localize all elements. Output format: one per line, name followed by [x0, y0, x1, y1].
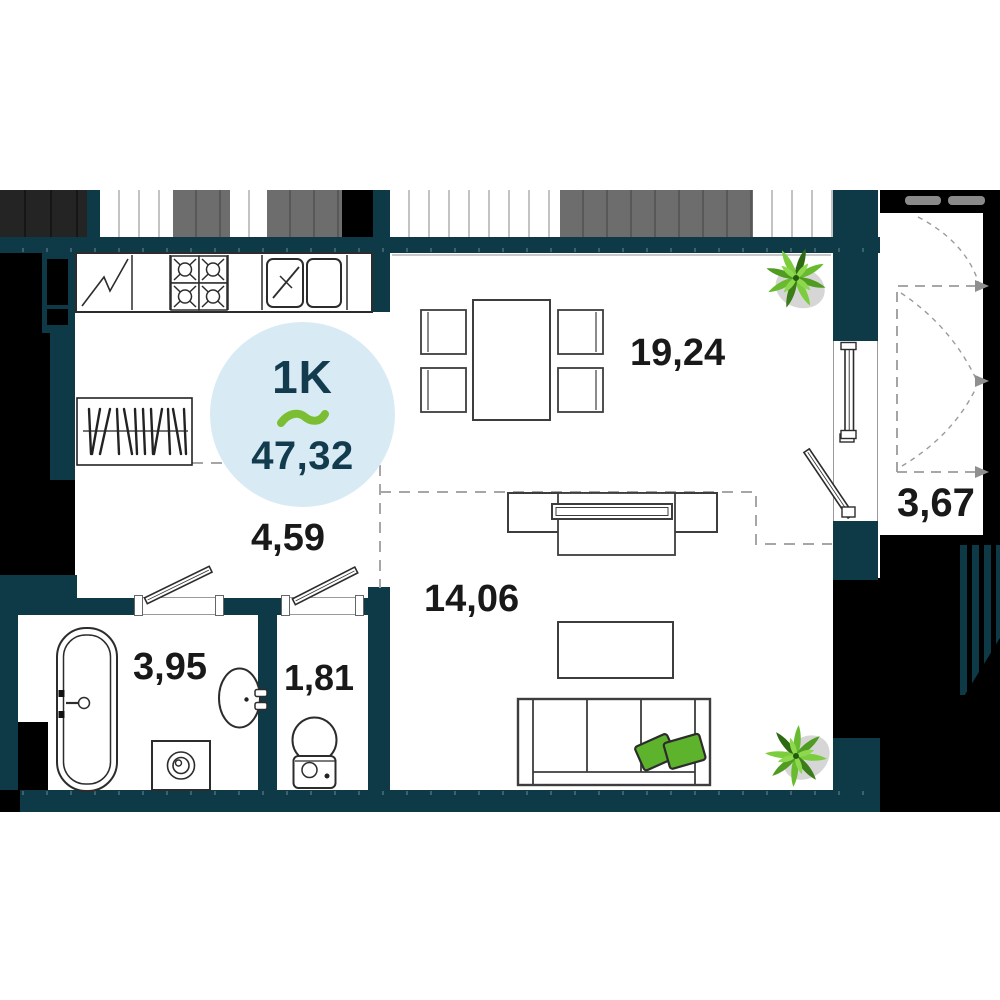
room-area-label: 4,59	[251, 519, 325, 557]
shaft-inset	[47, 259, 68, 305]
toilet-door-opening	[287, 597, 358, 615]
door-jamb	[215, 595, 224, 616]
wall-left-b	[50, 330, 75, 480]
vent-grille	[905, 196, 941, 205]
vent-grille	[948, 196, 985, 205]
wardrobe-icon	[77, 398, 192, 465]
neighbor-segment	[267, 190, 342, 237]
stove-icon	[171, 256, 227, 310]
wall-toilet-right	[368, 587, 390, 792]
exterior-mass-right	[833, 578, 880, 738]
bathroom-door-opening	[140, 597, 218, 615]
room-area-label: 14,06	[424, 580, 519, 618]
wall-right-mid	[833, 520, 878, 580]
wall-left-d	[0, 605, 18, 792]
total-area-label: 47,32	[251, 436, 354, 476]
exterior-inset	[18, 722, 48, 792]
chair	[421, 310, 466, 354]
shaft-inset	[47, 309, 68, 325]
tv-stand	[508, 493, 717, 555]
sofa	[518, 699, 710, 785]
apartment-type-label: 1K	[272, 354, 333, 400]
balcony-door-opening	[833, 441, 878, 521]
pillow-icon	[634, 733, 677, 771]
neighbor-segment	[0, 190, 87, 237]
balcony-right-wall	[983, 190, 1000, 540]
sink-icon	[267, 259, 341, 307]
wall-tick-marks	[0, 791, 878, 795]
room-area-label: 3,67	[897, 483, 975, 523]
bathtub-icon	[57, 628, 117, 791]
balcony-glazing-dashed	[897, 217, 989, 478]
wall-tick-marks	[0, 248, 878, 252]
apartment-floor-plan: 1K 47,32 19,24 14,06 4,59 3,95 1,81 3,67	[0, 0, 1000, 1000]
tilde-icon	[275, 408, 331, 430]
balcony-window-opening	[833, 341, 878, 442]
plant-icon	[752, 712, 840, 800]
chair	[558, 310, 603, 354]
neighbor-segment	[753, 190, 833, 237]
room-area-label: 3,95	[133, 648, 207, 686]
pillow-icon	[663, 733, 706, 769]
neighbor-wall	[373, 190, 390, 237]
neighbor-segment	[230, 190, 267, 237]
dining-table	[473, 300, 550, 420]
kitchen-counter	[76, 253, 372, 312]
dining-set	[421, 300, 603, 420]
fridge-icon	[82, 259, 128, 306]
apartment-badge: 1K 47,32	[210, 322, 395, 507]
door-jamb	[355, 595, 364, 616]
washing-machine-icon	[152, 741, 210, 790]
tv-icon	[552, 504, 672, 519]
neighbor-wall	[87, 190, 100, 237]
toilet-icon	[293, 718, 337, 789]
chair	[421, 368, 466, 412]
neighbor-segment	[342, 190, 373, 237]
neighbor-segment	[173, 190, 230, 237]
wall-right-bottom	[833, 738, 880, 812]
chair	[558, 368, 603, 412]
wall-right-top	[833, 190, 878, 343]
room-area-label: 19,24	[630, 334, 725, 372]
neighbor-segment	[100, 190, 173, 237]
neighbor-segment	[560, 190, 753, 237]
door-jamb	[134, 595, 143, 616]
coffee-table	[558, 622, 673, 678]
room-area-label: 1,81	[284, 660, 354, 696]
door-jamb	[281, 595, 290, 616]
neighbor-segment	[390, 190, 560, 237]
wall-bath-toilet-divider	[258, 613, 277, 792]
